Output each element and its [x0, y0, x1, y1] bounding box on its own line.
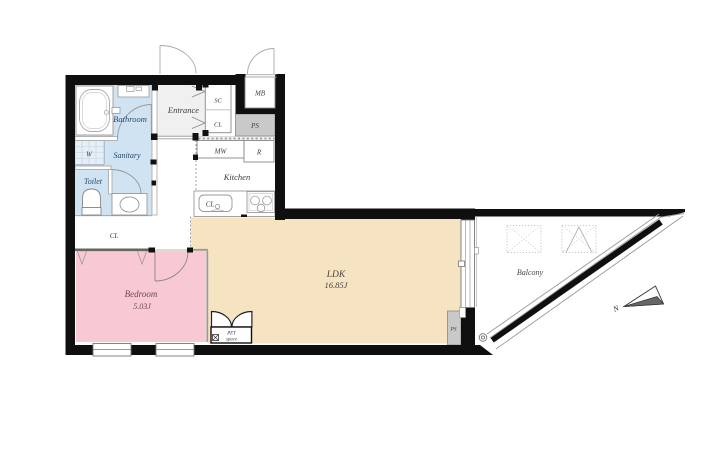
svg-text:CL: CL	[110, 232, 119, 240]
svg-text:PET: PET	[226, 332, 236, 337]
svg-text:16.85J: 16.85J	[325, 280, 349, 290]
svg-text:SC: SC	[214, 98, 222, 105]
svg-text:CL: CL	[206, 201, 215, 209]
svg-text:Balcony: Balcony	[517, 268, 544, 277]
svg-text:5.03J: 5.03J	[133, 302, 151, 311]
svg-text:CL: CL	[214, 122, 222, 129]
svg-text:Bathroom: Bathroom	[113, 114, 147, 124]
svg-text:Entrance: Entrance	[167, 105, 199, 115]
svg-text:R: R	[256, 149, 262, 157]
svg-text:MW: MW	[214, 148, 228, 156]
svg-text:Toilet: Toilet	[84, 177, 103, 186]
svg-text:PS: PS	[449, 327, 456, 333]
svg-text:Sanitary: Sanitary	[113, 151, 141, 160]
svg-text:space: space	[226, 338, 238, 343]
svg-text:PS: PS	[250, 122, 259, 130]
svg-text:Bedroom: Bedroom	[125, 289, 158, 299]
svg-text:LDK: LDK	[326, 270, 346, 280]
svg-text:Kitchen: Kitchen	[223, 172, 250, 182]
svg-text:MB: MB	[254, 90, 266, 98]
